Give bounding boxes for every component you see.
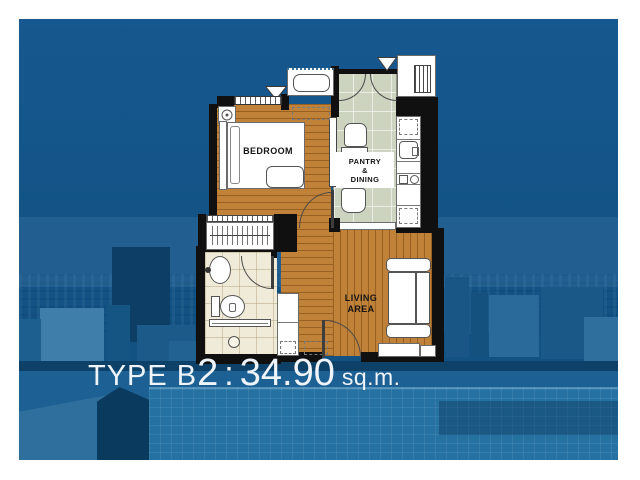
bed-blanket xyxy=(266,166,304,188)
tv-console xyxy=(420,345,436,357)
shower-partition-line xyxy=(212,323,268,324)
counter-divider xyxy=(397,205,420,206)
flower-ornament-icon xyxy=(221,109,233,121)
wall-segment xyxy=(432,228,444,354)
dining-chair xyxy=(344,123,367,147)
ac-louvre-icon xyxy=(414,65,431,93)
pantry-label: PANTRY & DINING xyxy=(336,152,394,188)
sofa-armrest xyxy=(386,258,431,272)
unit-area-value: 34.90 xyxy=(240,352,335,395)
unit-type-caption: TYPE B 2 : 34.90 sq.m. xyxy=(88,352,401,395)
living-label-line: AREA xyxy=(330,304,392,315)
door-leaf xyxy=(331,190,334,228)
pantry-threshold-sill xyxy=(334,222,396,230)
unit-area-unit: sq.m. xyxy=(342,364,401,391)
condenser-unit xyxy=(293,74,330,92)
ceiling-unit-outline xyxy=(292,107,330,120)
faucet-icon xyxy=(205,267,211,273)
caption-colon: : xyxy=(224,355,233,394)
counter-divider xyxy=(397,139,420,140)
pantry-label-line: DINING xyxy=(336,175,394,184)
toilet-tank xyxy=(211,296,220,317)
counter-divider xyxy=(397,161,420,162)
counter-divider xyxy=(397,184,420,185)
overhead-cabinet-outline xyxy=(399,208,418,224)
pantry-label-line: PANTRY xyxy=(336,157,394,166)
bathroom-sink xyxy=(209,256,231,284)
shower-drain-icon xyxy=(228,336,240,348)
sofa-armrest xyxy=(386,324,431,338)
bed-headboard xyxy=(219,121,227,190)
stove-burner-icon xyxy=(410,175,419,184)
unit-type-prefix: TYPE B xyxy=(88,360,197,393)
wall-segment xyxy=(196,246,205,364)
bedroom-label: BEDROOM xyxy=(231,146,305,157)
living-area-label: LIVING AREA xyxy=(330,293,392,315)
marketing-page: BEDROOM PANTRY & xyxy=(0,0,640,480)
sofa-back xyxy=(416,272,430,324)
wall-segment xyxy=(274,214,297,252)
living-label-line: LIVING xyxy=(330,293,392,304)
stove-burner-icon xyxy=(399,175,408,184)
window-marker-triangle-icon xyxy=(377,57,397,71)
wardrobe-sliding-door xyxy=(206,215,274,222)
floor-plan: BEDROOM PANTRY & xyxy=(0,0,640,480)
cabinet-divider xyxy=(278,322,298,323)
pantry-label-line: & xyxy=(336,166,394,175)
unit-type-number: 2 xyxy=(197,352,218,395)
bedroom-window xyxy=(234,96,282,105)
kitchen-tap-icon xyxy=(412,147,419,156)
wall-segment xyxy=(396,97,438,116)
wall-segment xyxy=(421,116,438,228)
wall-segment xyxy=(209,104,217,226)
overhead-cabinet-outline xyxy=(399,119,418,135)
sofa-seat xyxy=(388,272,416,324)
wardrobe-rod xyxy=(210,235,270,236)
wall-segment xyxy=(198,214,206,252)
toilet-flush-icon xyxy=(229,303,236,312)
dining-chair xyxy=(341,188,366,213)
counter-divider xyxy=(397,173,420,174)
